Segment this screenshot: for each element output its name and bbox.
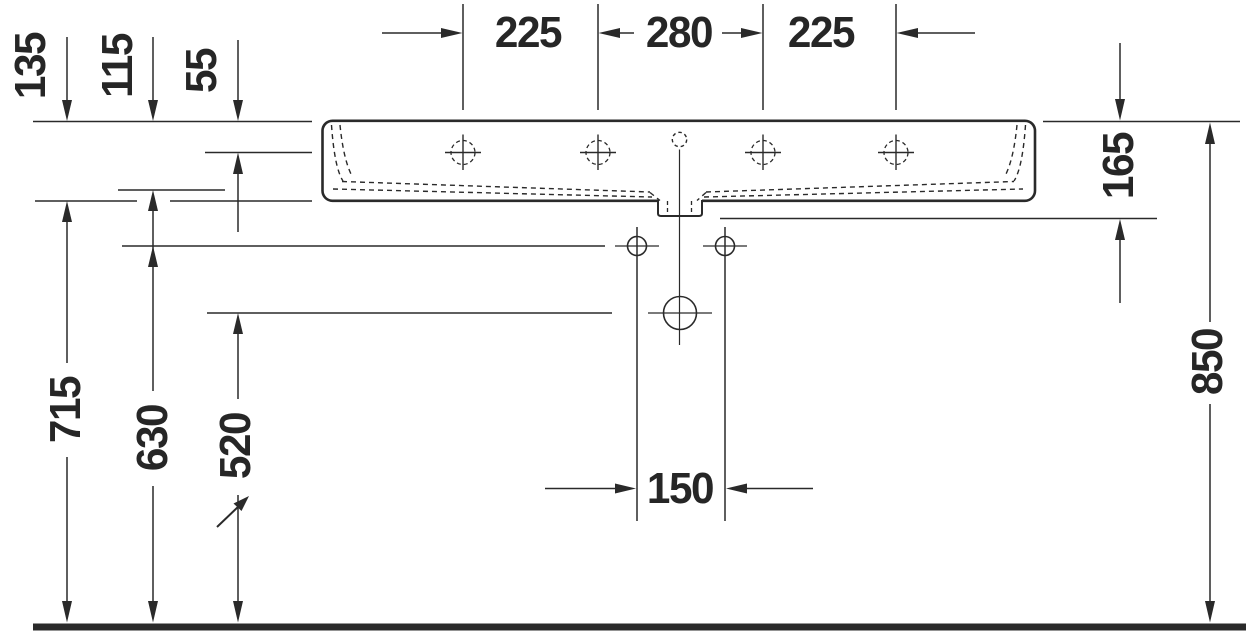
- arrowhead-up-520: [233, 313, 243, 334]
- variable-dim-arrow-shaft: [217, 505, 240, 527]
- arrowhead-down: [233, 601, 243, 623]
- basin: [323, 121, 1036, 201]
- overflow-hole: [672, 132, 686, 146]
- dim-label-225-right: 225: [788, 11, 854, 55]
- dim-label-225-left: 225: [495, 11, 561, 55]
- arrowhead-right: [615, 484, 636, 494]
- dim-label-520: 520: [214, 413, 258, 479]
- inner-bottom-lower-dashed: [333, 189, 1023, 197]
- dim-label-850: 850: [1186, 329, 1230, 395]
- arrowhead-right: [741, 28, 763, 38]
- dim-label-165: 165: [1097, 133, 1141, 199]
- tap-hole-1: [445, 135, 481, 171]
- arrowhead-down: [1205, 601, 1215, 623]
- tap-hole-3: [745, 135, 781, 171]
- arrowhead-left: [726, 484, 747, 494]
- arrowhead-down: [62, 601, 72, 623]
- arrowhead-down: [233, 100, 243, 121]
- arrowhead-left: [897, 28, 919, 38]
- arrowhead-down: [148, 100, 158, 121]
- arrowhead-up-115: [148, 190, 158, 211]
- tap-hole-2: [580, 135, 616, 171]
- inner-bottom-upper-dashed: [342, 182, 1014, 193]
- arrowhead-down: [148, 601, 158, 623]
- dim-label-135: 135: [9, 33, 53, 99]
- dim-label-715: 715: [44, 377, 88, 443]
- arrowhead-down: [1115, 99, 1125, 121]
- inner-wall-left-dashed: [332, 125, 353, 181]
- dim-label-55: 55: [180, 49, 224, 93]
- tap-hole-4: [878, 135, 914, 171]
- dim-label-150: 150: [647, 467, 713, 511]
- washbasin-technical-drawing: [0, 0, 1246, 633]
- inner-basin-dashed-contour: [332, 125, 1026, 201]
- arrowhead-down: [62, 100, 72, 121]
- arrowhead-up-630: [148, 246, 158, 267]
- dim-label-280: 280: [646, 11, 712, 55]
- arrowhead-up: [1205, 123, 1215, 145]
- drawing-canvas: 135 115 55 225 280 225 715 630 520 165 8…: [0, 0, 1246, 633]
- arrowhead-left: [599, 28, 621, 38]
- dim-label-630: 630: [131, 405, 175, 471]
- inner-wall-right-dashed: [1005, 125, 1026, 181]
- dim-label-115: 115: [96, 34, 140, 98]
- arrowhead-right: [441, 28, 463, 38]
- arrowhead-up-135: [62, 201, 72, 222]
- drain-assembly: [648, 150, 712, 346]
- arrowhead-up: [1115, 219, 1125, 240]
- supply-connections: [615, 237, 747, 256]
- arrowhead-up-55: [233, 153, 243, 175]
